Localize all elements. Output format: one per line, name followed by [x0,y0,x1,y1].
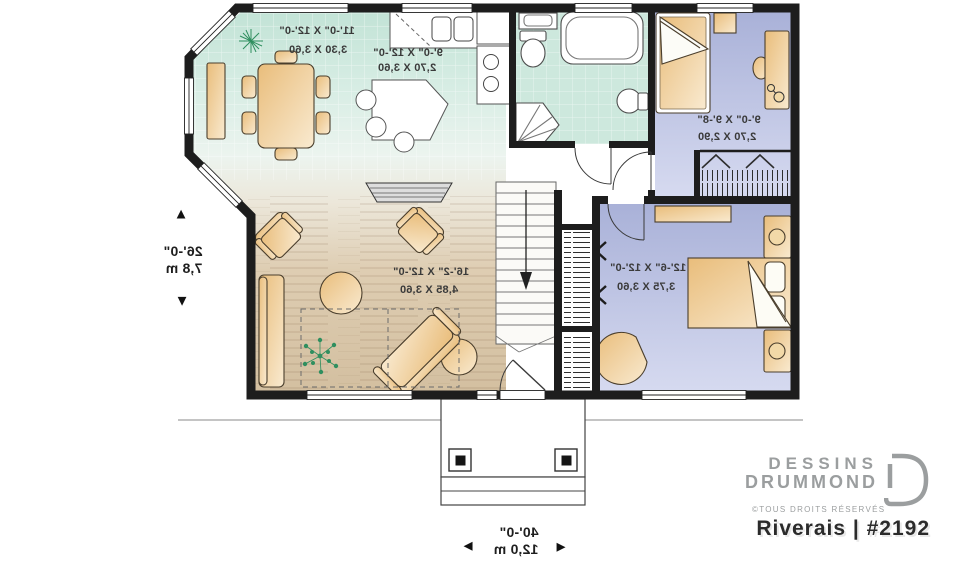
brand-line2: DRUMMOND [745,473,878,492]
tv-unit [366,183,452,202]
plan-name: Riverais | #2192 [756,517,930,541]
dresser [655,206,731,222]
kitchen-chair [366,117,386,137]
width-dimension-imperial: 40'-0" [499,524,538,540]
dimension-arrow-left: ◄ [461,538,476,555]
rights-notice: ©TOUS DROITS RÉSERVÉS [752,505,885,514]
lamp-icon [769,229,785,245]
bedroom2-door [613,152,651,190]
porch [441,399,585,505]
window-bedroom2-top [697,4,753,13]
kitchen-sink [454,17,473,41]
closet-rod-hatch [700,170,792,196]
bedroom2-size-imperial: 9'-0" X 9'-8" [697,114,761,126]
living-size-imperial: 16'-2" X 12'-0" [393,266,469,278]
dining-size-metric: 3,30 X 3,60 [289,44,347,56]
stove-burner [484,55,499,70]
kitchen-chair [356,90,376,110]
staircase [496,182,556,352]
dining-chair [242,112,256,134]
bathtub [561,12,643,64]
master-size-imperial: 12'-6" X 12'-0" [610,262,686,274]
porch-post-right [555,449,577,471]
brand-line1: DESSINS [745,455,878,473]
living-size-metric: 4,85 X 3,60 [400,284,458,296]
dimension-arrow-right: ► [554,539,569,556]
entry-closet-hatch [564,334,590,390]
depth-dimension-imperial: 26'-0" [163,243,202,259]
pedestal-sink-back [638,93,648,110]
dimension-arrow-down: ▼ [175,293,190,310]
window-dining-top [253,4,348,13]
pillow [765,262,785,292]
kitchen-chair [394,132,414,152]
pedestal-sink [617,89,641,113]
window-living-bottom [307,391,412,400]
nightstand [714,13,736,33]
toilet-icon [521,39,545,67]
entry-sidelight [477,391,497,400]
floorplan-page: 11'-0" X 12'-0" 3,30 X 3,60 9'-0" X 12'-… [0,0,960,569]
bathroom-door [575,148,611,184]
dining-size-imperial: 11'-0" X 12'-0" [279,25,355,37]
brand-wordmark: DESSINS DRUMMOND [745,455,878,492]
vanity-basin [524,15,552,26]
dining-chair [275,148,297,160]
window-bath-top [575,4,632,13]
fridge [477,12,511,44]
dining-chair [316,112,330,134]
width-dimension-metric: 12,0 m [494,541,539,557]
linen-closet-hatch [564,232,590,324]
dining-chair [316,76,330,98]
kitchen-size-metric: 2,70 X 3,60 [378,62,436,74]
window-kitchen-top [402,4,472,13]
buffet [207,63,225,139]
drummond-logo-icon [884,452,930,508]
lamp-icon [769,343,785,359]
window-master-bottom [642,391,746,400]
porch-post-left [449,449,471,471]
dining-chair [242,76,256,98]
dimension-arrow-up: ▲ [174,206,189,223]
master-size-metric: 3,75 X 3,60 [617,281,675,293]
bedroom2-size-metric: 2,70 X 2,90 [698,131,756,143]
stove-burner [484,77,499,92]
bay-window-center [185,78,194,134]
entrance-door [500,360,545,400]
coffee-table [320,272,362,314]
dining-table [258,64,314,148]
kitchen-size-imperial: 9'-0" X 12'-0" [373,47,443,59]
depth-dimension-metric: 7,8 m [166,260,203,276]
kitchen-sink [432,17,451,41]
